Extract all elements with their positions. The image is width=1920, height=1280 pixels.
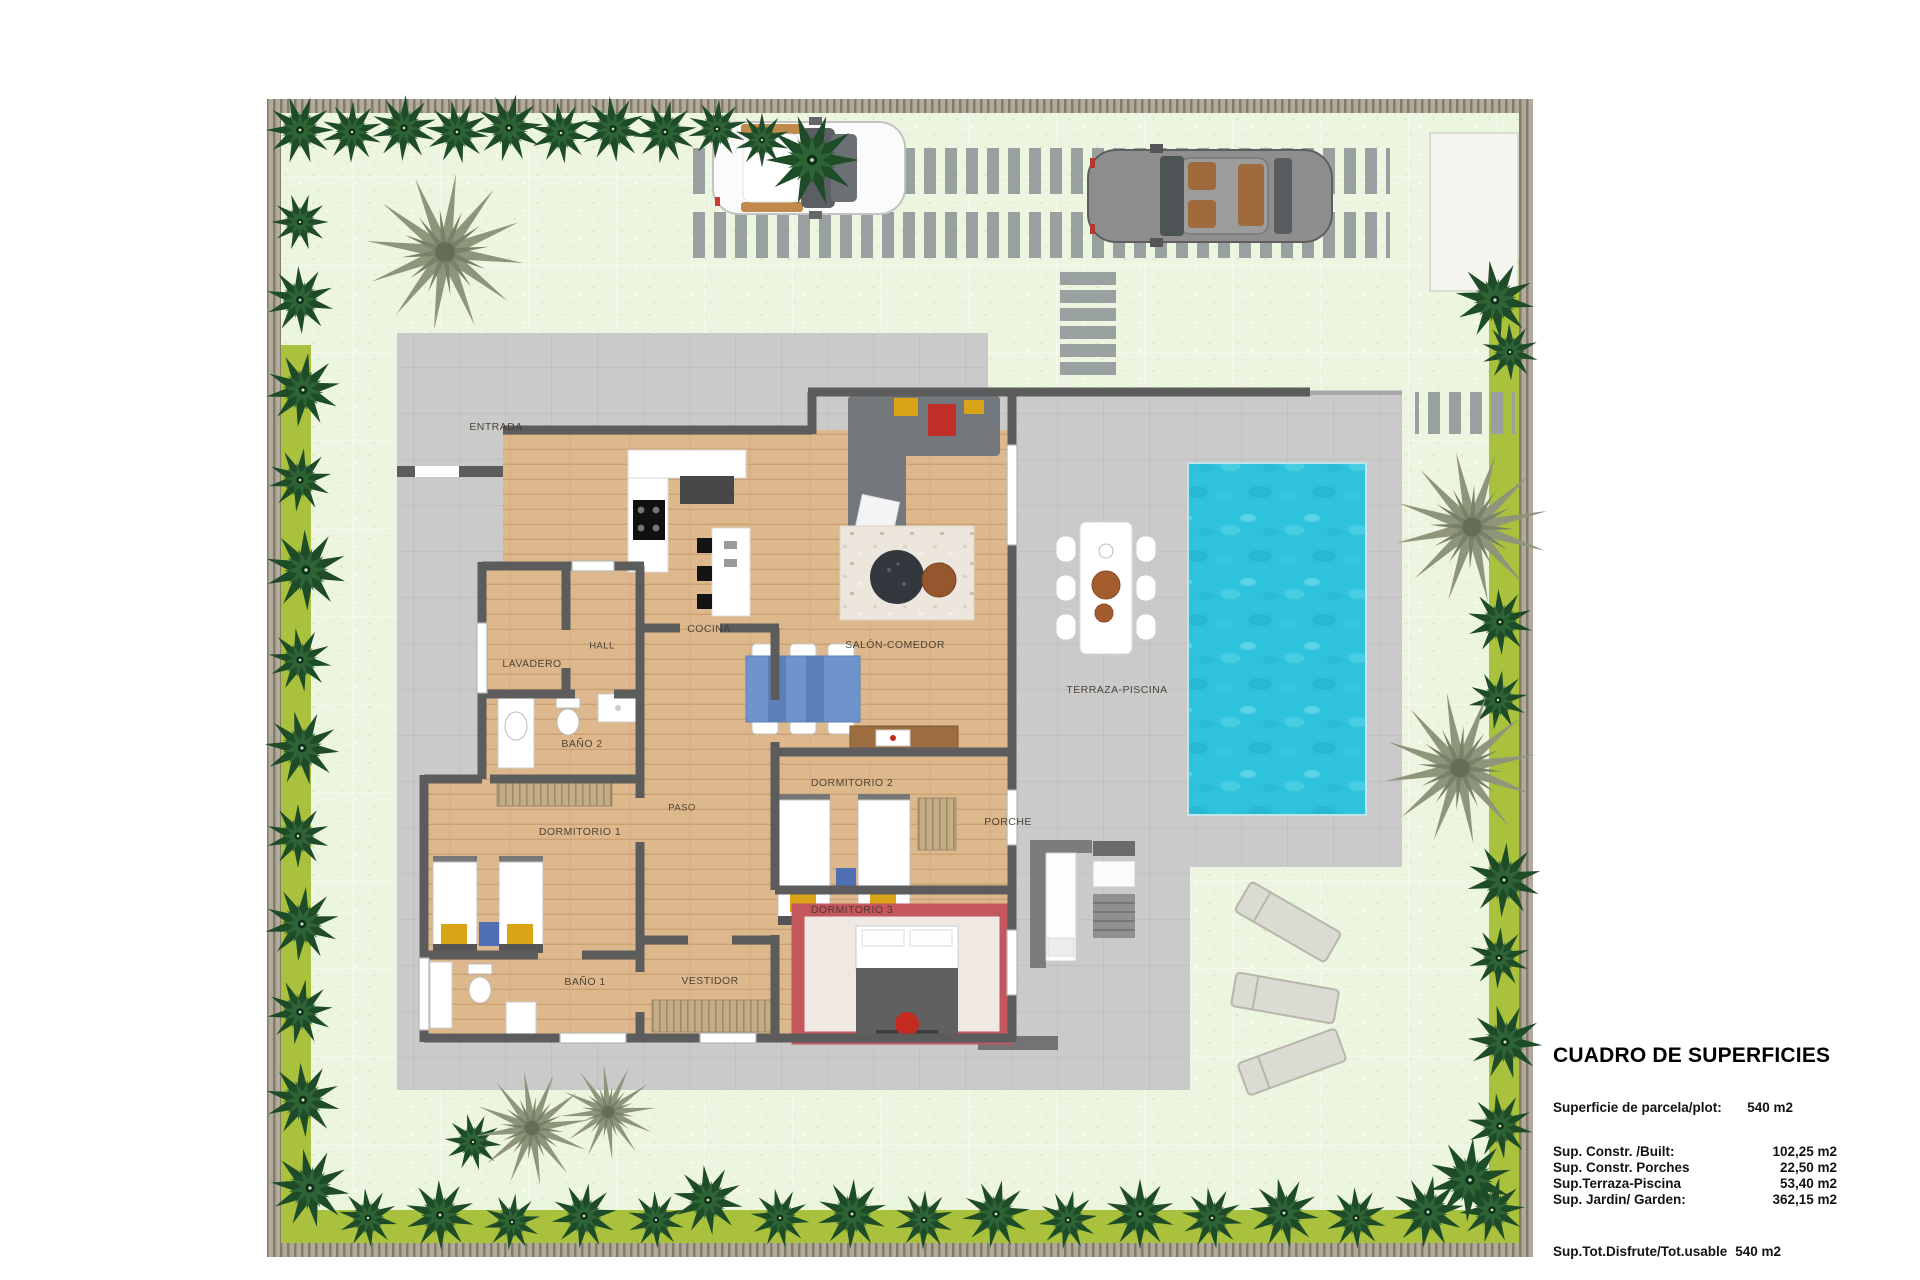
surface-row-label: Superficie de parcela/plot: bbox=[1553, 1100, 1722, 1116]
surface-row-garden: Sup. Jardin/ Garden: 362,15 m2 bbox=[1553, 1192, 1837, 1208]
surface-row-value: 53,40 m2 bbox=[1780, 1176, 1837, 1192]
swimming-pool bbox=[1188, 463, 1366, 815]
plot-border-top bbox=[267, 99, 1533, 113]
surface-row-value: 540 m2 bbox=[1735, 1244, 1837, 1260]
bedroom3-furniture bbox=[798, 910, 1006, 1040]
surface-row-value: 362,15 m2 bbox=[1772, 1192, 1837, 1208]
surface-row-label: Sup.Terraza-Piscina bbox=[1553, 1176, 1681, 1192]
coffee-table bbox=[870, 550, 924, 604]
surface-row-built: Sup. Constr. /Built: 102,25 m2 bbox=[1553, 1144, 1837, 1160]
surface-row-label: Sup. Constr. /Built: bbox=[1553, 1144, 1675, 1160]
surface-rows: Sup. Constr. /Built: 102,25 m2 Sup. Cons… bbox=[1553, 1144, 1837, 1208]
surface-row-parcel: Superficie de parcela/plot: 540 m2 bbox=[1553, 1100, 1837, 1116]
surface-row-label: Sup. Constr. Porches bbox=[1553, 1160, 1690, 1176]
surface-row-value: 540 m2 bbox=[1747, 1100, 1837, 1116]
surface-row-label: Sup.Tot.Disfrute/Tot.usable bbox=[1553, 1244, 1727, 1260]
vestidor-wardrobe bbox=[652, 1000, 774, 1032]
gray-car bbox=[1088, 144, 1332, 247]
surface-row-value: 102,25 m2 bbox=[1772, 1144, 1837, 1160]
surface-row-value: 22,50 m2 bbox=[1780, 1160, 1837, 1176]
surface-row-total: Sup.Tot.Disfrute/Tot.usable 540 m2 bbox=[1553, 1244, 1837, 1260]
terrace-dining-set bbox=[1056, 522, 1156, 654]
surface-row-terraza: Sup.Terraza-Piscina 53,40 m2 bbox=[1553, 1176, 1837, 1192]
neighbor-pad bbox=[1430, 133, 1518, 291]
surface-row-porches: Sup. Constr. Porches 22,50 m2 bbox=[1553, 1160, 1837, 1176]
dining-table bbox=[746, 644, 860, 734]
surface-table-title: CUADRO DE SUPERFICIES bbox=[1553, 1044, 1837, 1068]
plot-border-bottom bbox=[267, 1243, 1533, 1257]
house bbox=[419, 388, 1017, 1043]
side-slats bbox=[1415, 392, 1515, 434]
floor-plan-page: ENTRADA LAVADERO HALL COCINA SALÓN-COMED… bbox=[0, 0, 1920, 1280]
stove-hob bbox=[633, 500, 665, 540]
plot-border-left bbox=[267, 99, 281, 1257]
plot-border-right bbox=[1519, 99, 1533, 1257]
surface-row-label: Sup. Jardin/ Garden: bbox=[1553, 1192, 1686, 1208]
surface-table: CUADRO DE SUPERFICIES Superficie de parc… bbox=[1553, 1044, 1837, 1260]
